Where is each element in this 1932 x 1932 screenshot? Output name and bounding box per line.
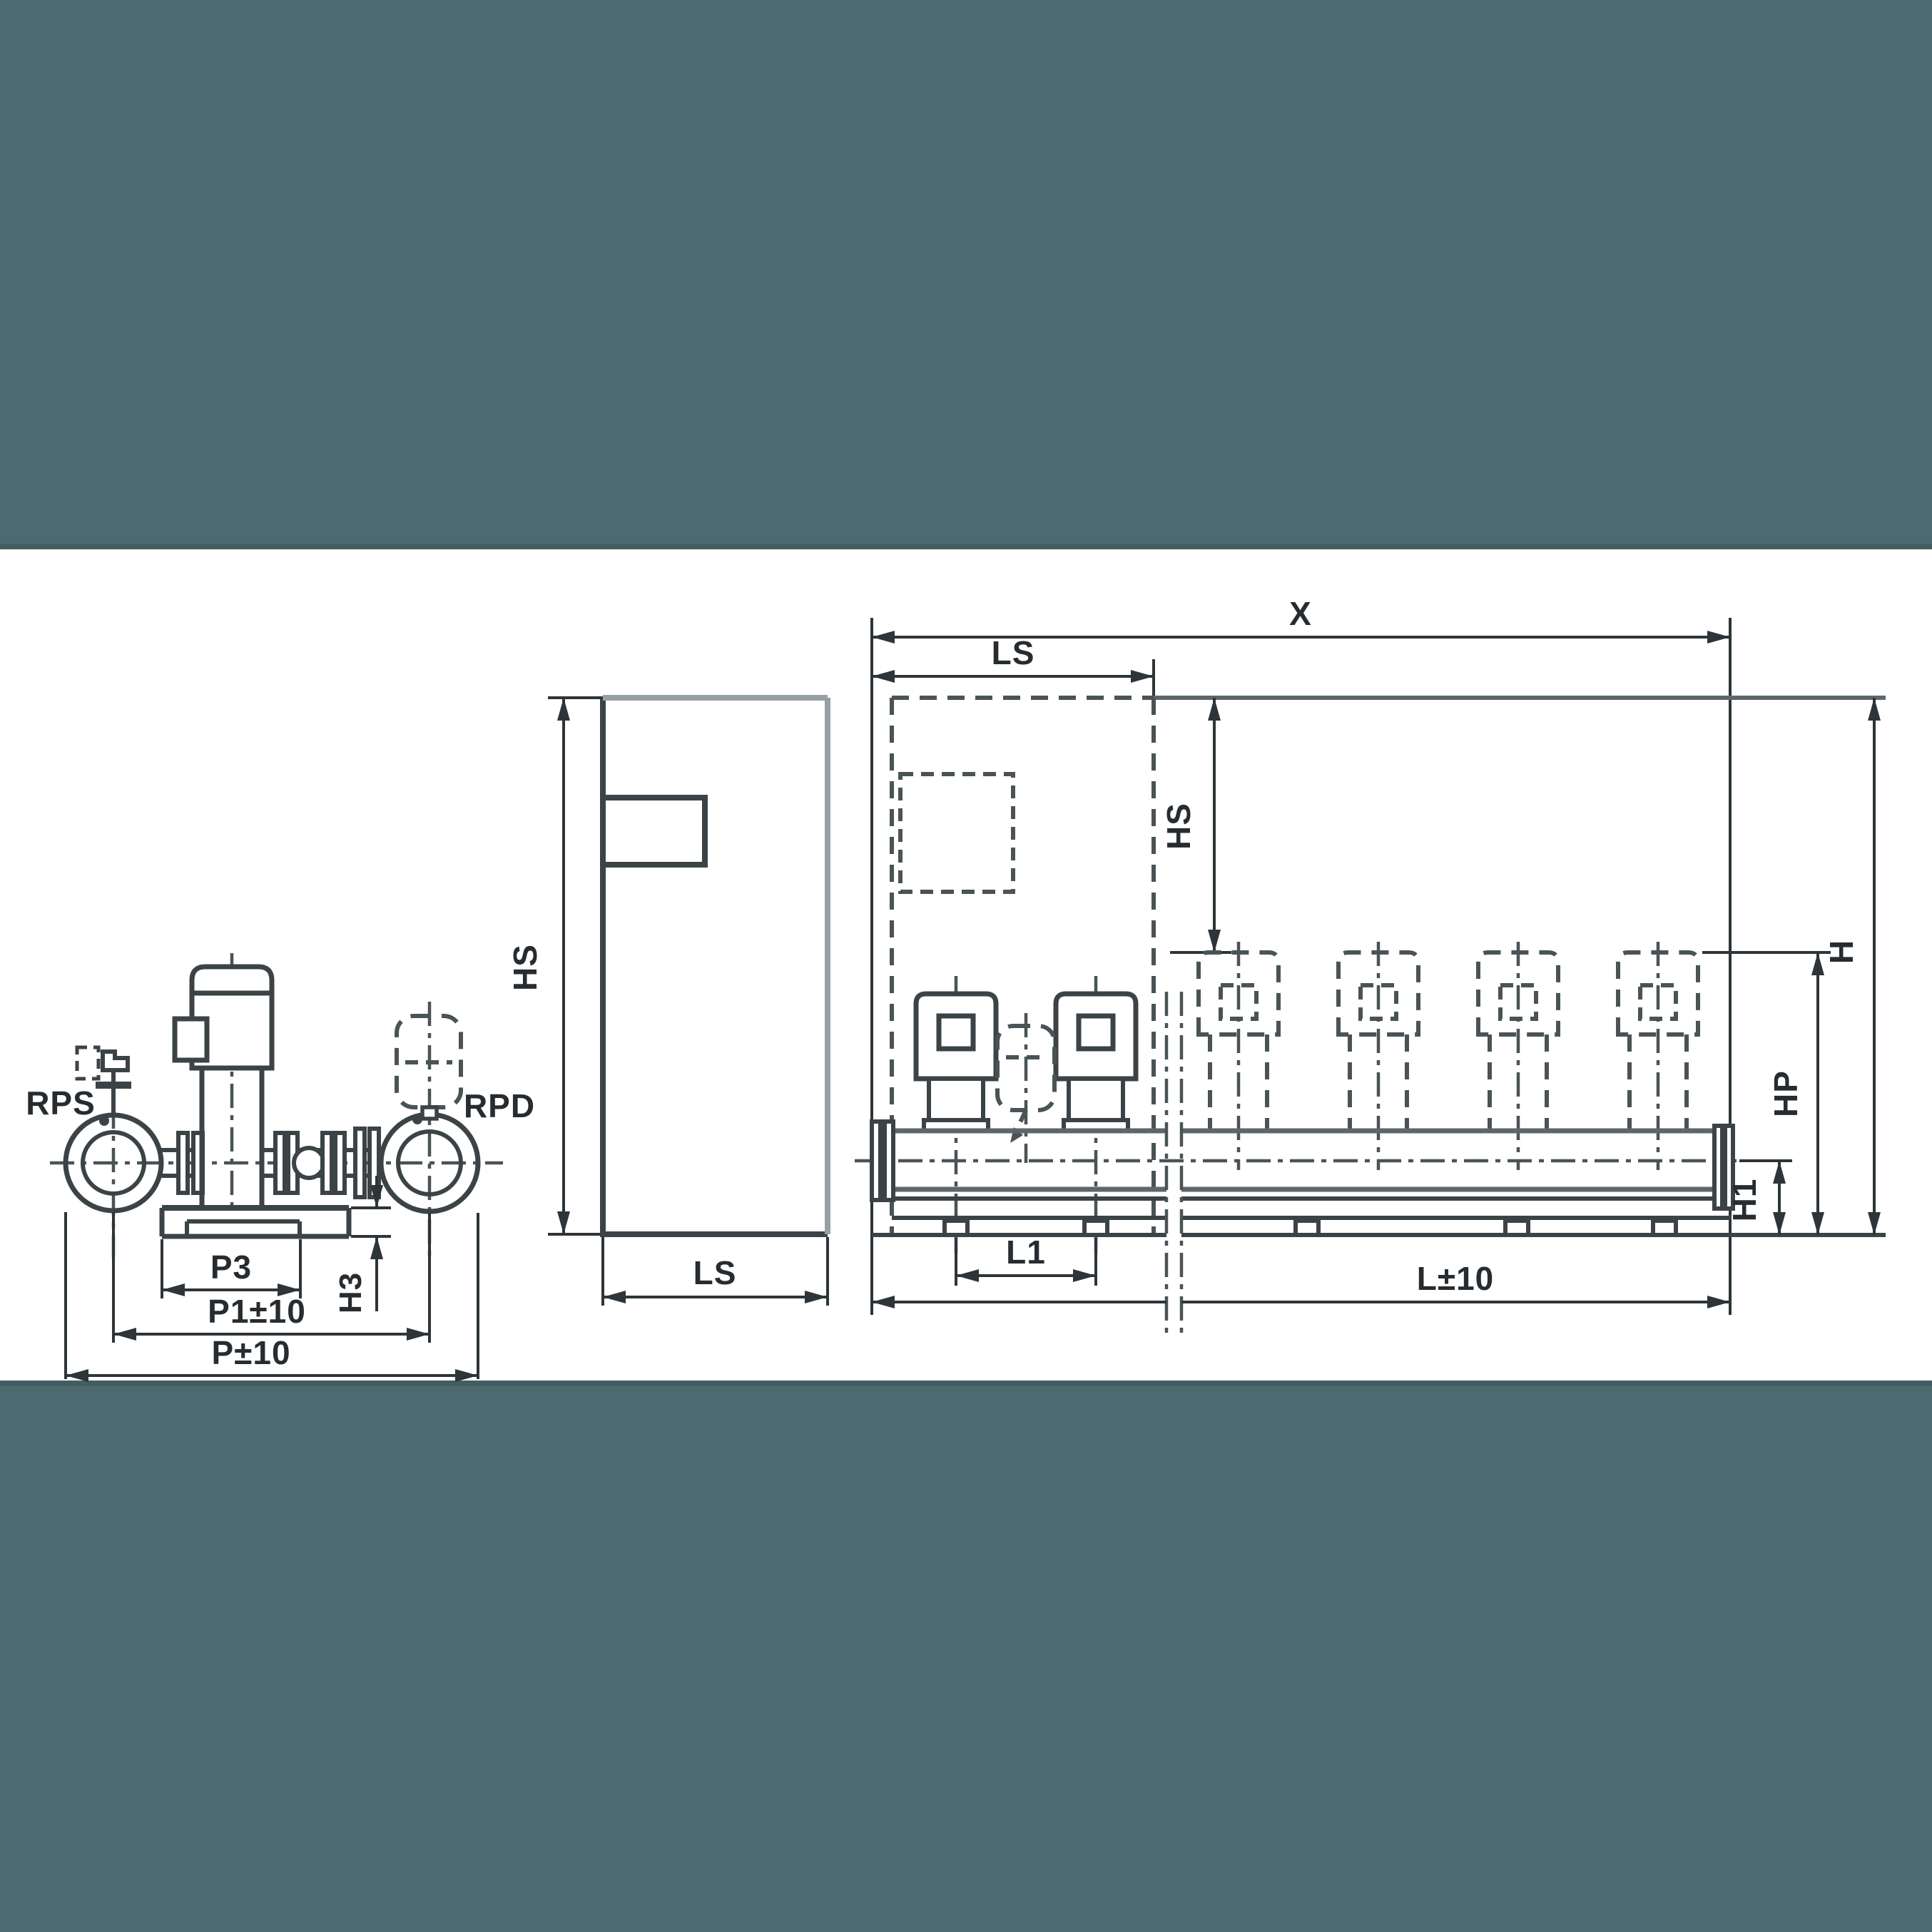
flange-plate	[335, 1133, 345, 1193]
dim-label-hs: HS	[1160, 803, 1197, 850]
dim-label-cabinet-hs: HS	[507, 944, 544, 991]
top-band	[0, 0, 1932, 549]
pump-column	[929, 1079, 983, 1120]
pump-motor	[1056, 994, 1136, 1079]
dim-label-cabinet-ls: LS	[693, 1254, 737, 1291]
dim-label-hp: HP	[1767, 1070, 1804, 1117]
dim-label-h1: H1	[1726, 1179, 1763, 1222]
top-band-edge	[0, 544, 1932, 549]
pump-column	[1069, 1079, 1123, 1120]
vessel-connector	[422, 1107, 437, 1119]
dim-label-p: P±10	[211, 1334, 290, 1371]
dim-label-l1: L1	[1006, 1234, 1046, 1271]
check-valve-ball	[294, 1148, 324, 1178]
suction-flange-bolt	[99, 1116, 109, 1126]
bottom-band	[0, 1381, 1932, 1932]
dim-label-x: X	[1289, 595, 1312, 632]
dim-label-p1: P1±10	[208, 1293, 306, 1330]
dim-label-h3: H3	[333, 1272, 368, 1313]
bottom-band-edge	[0, 1381, 1932, 1386]
dim-label-p3: P3	[210, 1249, 252, 1286]
cabinet-louver-box	[603, 798, 705, 865]
dim-label-l: L±10	[1417, 1260, 1495, 1297]
pipe-flange-left	[872, 1122, 880, 1200]
pump-system-dimensional-drawing: H3 P3 P1±10 P±10 RPS RPD HS	[0, 0, 1932, 1932]
label-rps: RPS	[26, 1084, 96, 1122]
flange-plate	[275, 1133, 285, 1193]
flange-plate	[178, 1133, 188, 1193]
pipe-flange-left	[885, 1122, 893, 1200]
dim-label-ls: LS	[992, 634, 1035, 671]
motor-terminal-box	[175, 1019, 207, 1060]
label-rpd: RPD	[464, 1087, 535, 1124]
motor-cap	[192, 967, 272, 993]
pipe-flange-right	[1714, 1126, 1722, 1209]
pump-motor	[916, 994, 996, 1079]
flange-plate	[322, 1133, 332, 1193]
flange-plate	[355, 1129, 365, 1197]
